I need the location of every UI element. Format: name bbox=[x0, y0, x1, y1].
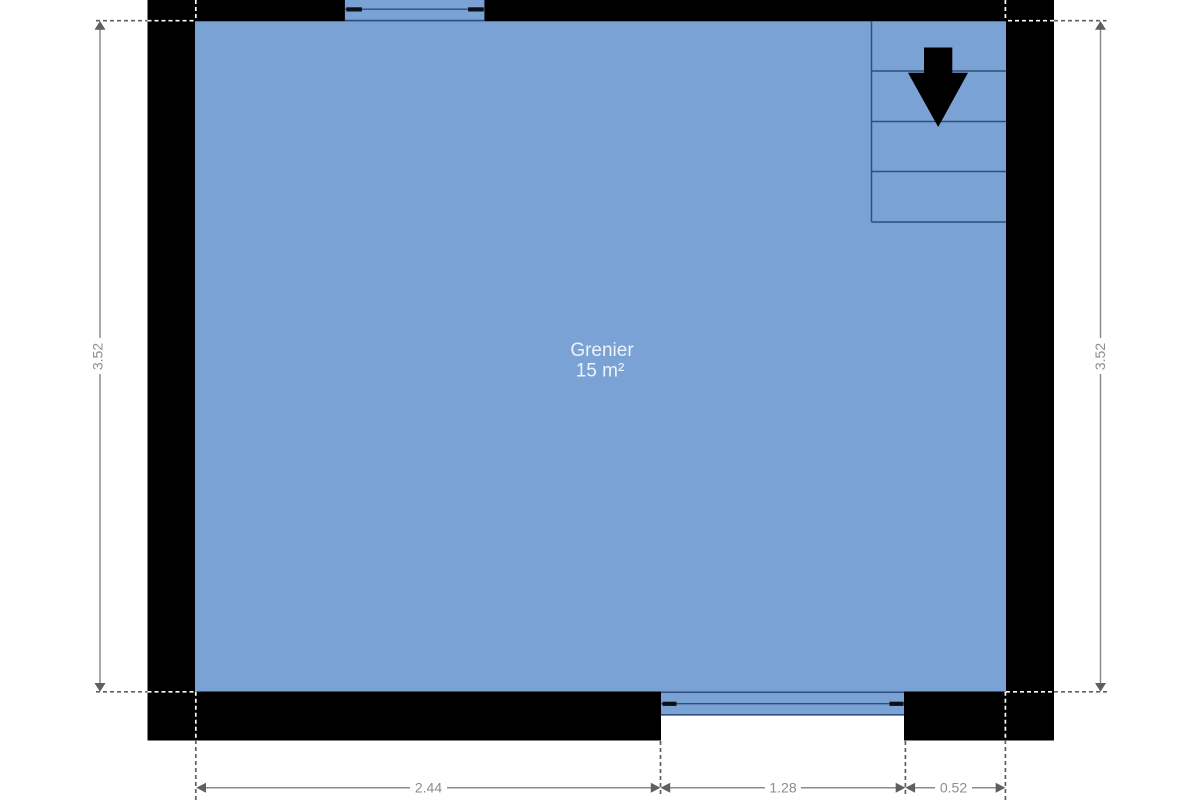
svg-text:0.52: 0.52 bbox=[940, 780, 967, 796]
svg-text:3.52: 3.52 bbox=[1092, 343, 1108, 370]
svg-text:Grenier: Grenier bbox=[570, 340, 634, 361]
svg-text:2.44: 2.44 bbox=[415, 780, 442, 796]
svg-text:1.28: 1.28 bbox=[769, 780, 796, 796]
svg-text:15 m²: 15 m² bbox=[576, 361, 625, 382]
svg-text:3.52: 3.52 bbox=[90, 343, 106, 370]
